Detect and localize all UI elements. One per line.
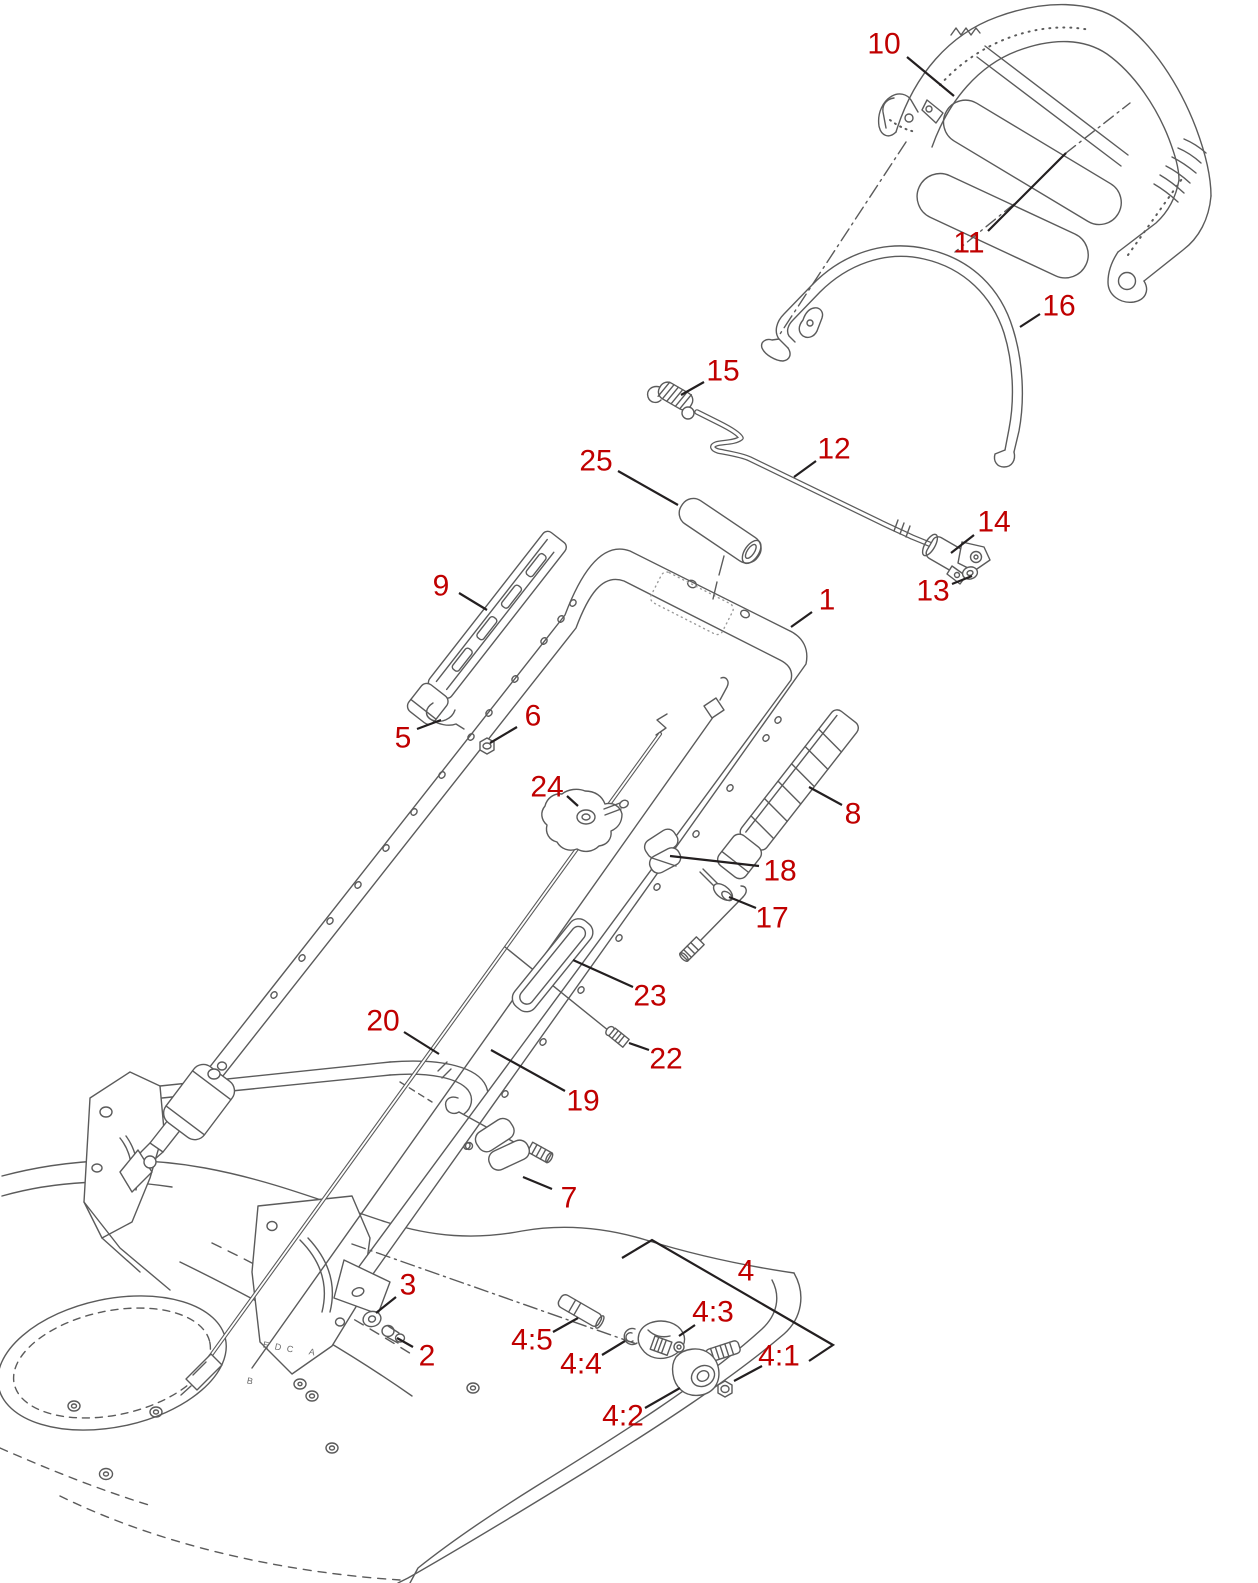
callout-label-9: 9	[433, 570, 450, 603]
callout-label-19: 19	[566, 1085, 599, 1118]
washer-3-drawing	[361, 1309, 382, 1328]
callout-label-6: 6	[525, 700, 542, 733]
callout-label-1: 1	[819, 584, 836, 617]
nut-6-drawing	[480, 738, 494, 754]
callout-label-2: 2	[419, 1340, 436, 1373]
leader-line-4:5	[553, 1318, 578, 1332]
panel-11-drawing	[910, 103, 1130, 285]
clip-4-4-drawing	[624, 1329, 637, 1345]
leader-line-20	[404, 1032, 439, 1054]
mower-deck-drawing	[0, 1061, 801, 1583]
leader-line-8	[809, 787, 842, 805]
bracket-4-3-drawing	[638, 1321, 684, 1358]
callout-label-4:5: 4:5	[511, 1324, 553, 1357]
callout-label-16: 16	[1042, 290, 1075, 323]
callout-label-4:4: 4:4	[560, 1348, 602, 1381]
rail-9-drawing	[405, 528, 571, 727]
leader-line-22	[629, 1043, 649, 1050]
callout-label-25: 25	[579, 445, 612, 478]
callout-label-15: 15	[706, 355, 739, 388]
cable-end-upper-drawing	[678, 886, 746, 963]
callout-label-4:1: 4:1	[758, 1340, 800, 1373]
assembly-axis-line	[352, 1244, 648, 1348]
spring-15-drawing	[648, 379, 696, 419]
leader-line-25	[618, 471, 678, 505]
callout-layer: 1011161512251413195624818172320221973244…	[246, 28, 1076, 1433]
bail-16-drawing	[762, 246, 1023, 467]
leader-line-12	[794, 461, 816, 477]
callout-label-18: 18	[763, 855, 796, 888]
leader-line-4:4	[602, 1341, 625, 1355]
alignment-centerline	[780, 142, 906, 334]
callout-label-8: 8	[845, 798, 862, 831]
parts-diagram-page: 1011161512251413195624818172320221973244…	[0, 0, 1258, 1583]
callout-label-11: 11	[953, 227, 984, 260]
callout-label-17: 17	[755, 902, 788, 935]
callout-label-14: 14	[977, 506, 1010, 539]
deck-marking-B: B	[246, 1375, 254, 1386]
callout-label-12: 12	[817, 433, 850, 466]
callout-label-22: 22	[649, 1043, 682, 1076]
callout-label-5: 5	[395, 722, 412, 755]
leader-line-15	[681, 382, 704, 395]
callout-label-7: 7	[561, 1182, 578, 1215]
leader-line-7	[523, 1177, 552, 1189]
callout-label-24: 24	[530, 771, 563, 804]
callout-label-4:3: 4:3	[692, 1296, 734, 1329]
deck-bolt-holes	[68, 1383, 479, 1480]
callout-label-10: 10	[867, 28, 900, 61]
leader-line-1	[791, 612, 812, 627]
grip-ribs	[1154, 139, 1206, 202]
callout-label-4:2: 4:2	[602, 1400, 644, 1433]
parts-diagram-canvas: 1011161512251413195624818172320221973244…	[0, 0, 1258, 1583]
right-leg-holes	[463, 716, 783, 1151]
callout-label-20: 20	[366, 1005, 399, 1038]
callout-label-23: 23	[633, 980, 666, 1013]
callout-label-13: 13	[916, 575, 949, 608]
leader-line-9	[459, 593, 487, 610]
leader-line-16	[1020, 314, 1040, 327]
nut-4-1-drawing	[718, 1381, 732, 1397]
callout-label-4: 4	[738, 1255, 755, 1288]
callout-label-3: 3	[400, 1269, 417, 1302]
